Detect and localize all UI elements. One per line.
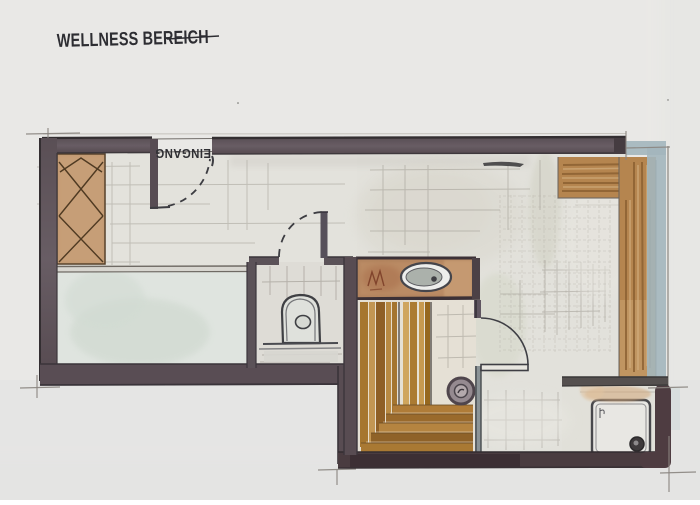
svg-text:EINGANG: EINGANG bbox=[155, 146, 211, 160]
svg-text:WELLNESS BEREICH: WELLNESS BEREICH bbox=[57, 27, 209, 52]
